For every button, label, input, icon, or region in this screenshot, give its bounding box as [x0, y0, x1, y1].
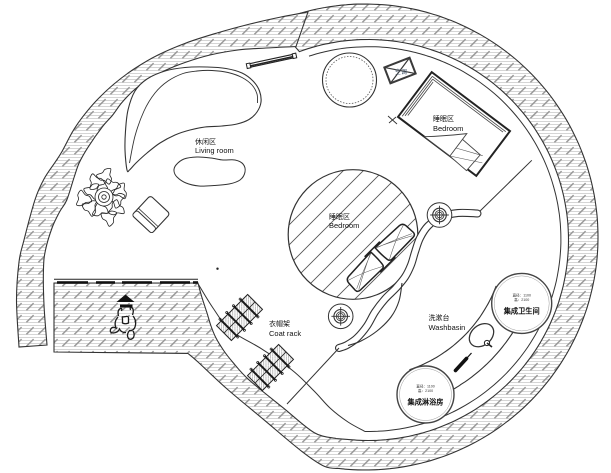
- svg-text:直径：1100: 直径：1100: [416, 384, 435, 389]
- svg-text:直径：1100: 直径：1100: [512, 292, 531, 297]
- svg-text:Bedroom: Bedroom: [433, 124, 463, 133]
- svg-text:高：2100: 高：2100: [514, 297, 529, 302]
- svg-text:洗漱台: 洗漱台: [429, 313, 450, 322]
- svg-text:高：2100: 高：2100: [418, 388, 433, 393]
- svg-text:空调: 空调: [395, 68, 407, 76]
- svg-text:睡眠区: 睡眠区: [329, 213, 350, 221]
- svg-text:Living room: Living room: [195, 146, 234, 155]
- svg-text:集成淋浴房: 集成淋浴房: [407, 398, 444, 407]
- svg-text:Coat rack: Coat rack: [269, 329, 301, 338]
- svg-text:睡眠区: 睡眠区: [433, 115, 454, 123]
- svg-text:集成卫生间: 集成卫生间: [503, 306, 540, 315]
- svg-text:Bedroom: Bedroom: [329, 221, 359, 230]
- svg-text:衣帽架: 衣帽架: [269, 319, 290, 328]
- svg-text:休闲区: 休闲区: [195, 137, 216, 146]
- svg-text:Washbasin: Washbasin: [429, 323, 466, 332]
